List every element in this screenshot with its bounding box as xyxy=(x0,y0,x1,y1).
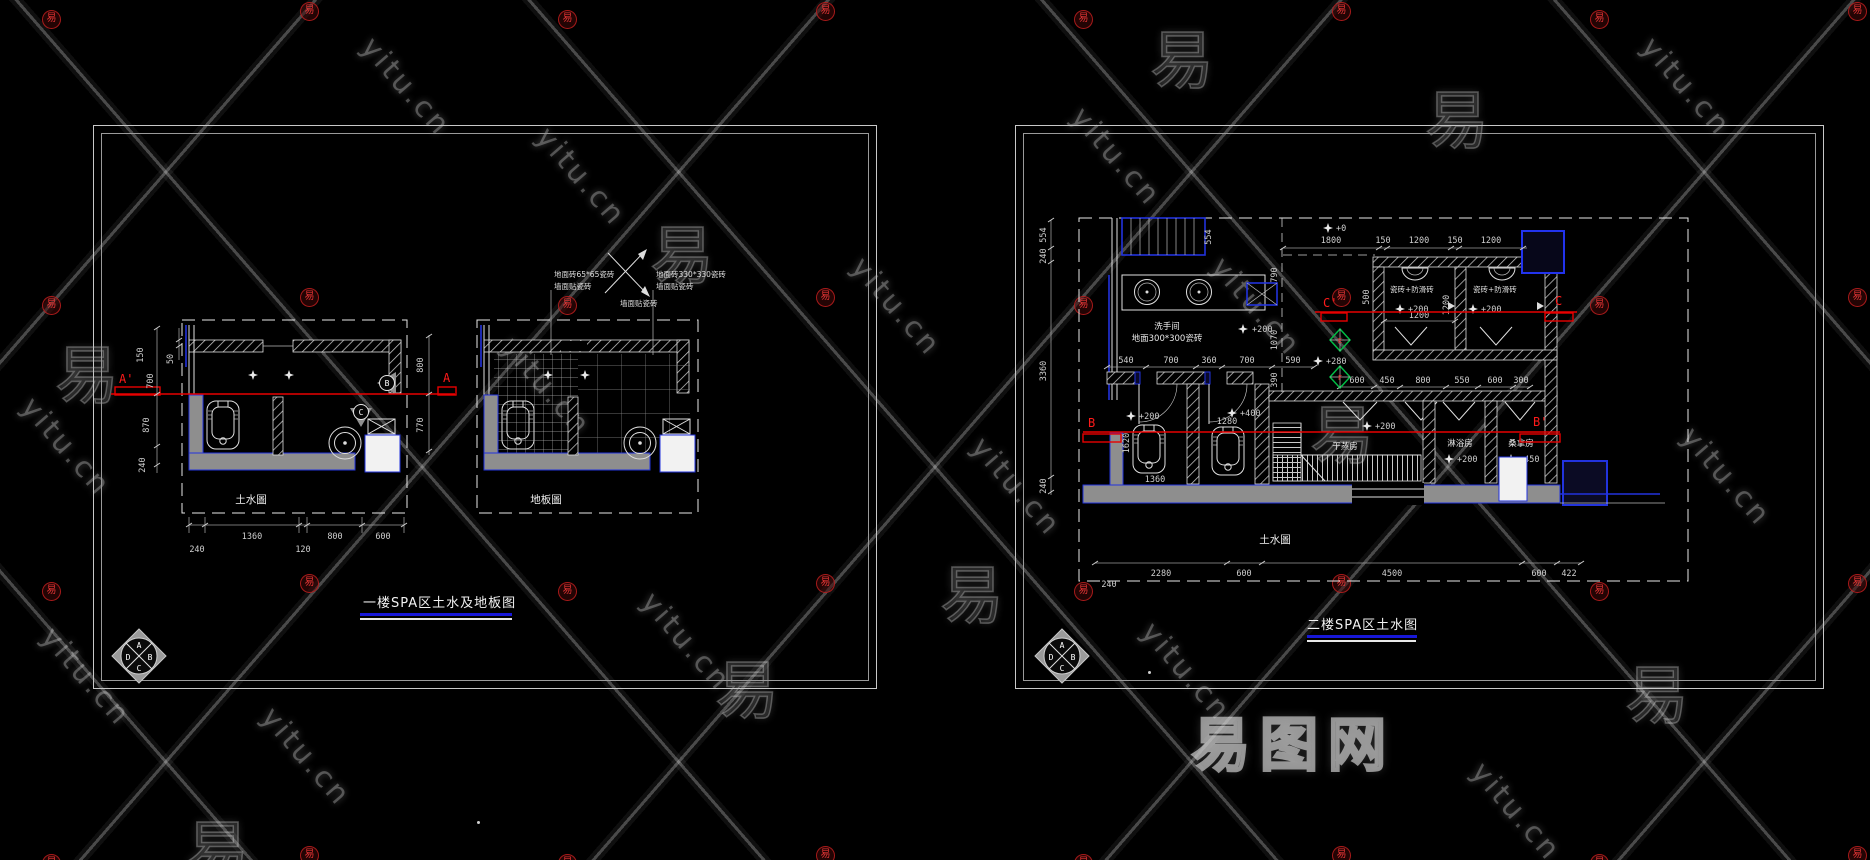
section-b-end: B' xyxy=(1533,415,1547,429)
washroom-counter xyxy=(1122,275,1265,310)
svg-text:800: 800 xyxy=(416,357,426,372)
watermark-badge-icon: 易 xyxy=(558,10,577,29)
svg-text:422: 422 xyxy=(1561,569,1576,579)
marker-c-label: C xyxy=(359,408,364,417)
svg-text:500: 500 xyxy=(1362,289,1372,304)
svg-text:1360: 1360 xyxy=(1145,475,1165,485)
svg-text:1800: 1800 xyxy=(1321,236,1341,246)
watermark-badge-icon: 易 xyxy=(300,846,319,860)
marker-b: B xyxy=(377,372,396,394)
bathtub xyxy=(207,401,239,449)
watermark-badge-icon: 易 xyxy=(1590,854,1609,860)
section-line-a: A' A xyxy=(111,371,456,395)
svg-text:390: 390 xyxy=(1270,372,1280,387)
svg-text:240: 240 xyxy=(1039,478,1049,493)
svg-text:1280: 1280 xyxy=(1217,417,1237,427)
callout-tile-330: 地面砖330*330瓷砖 xyxy=(656,269,726,279)
svg-text:150: 150 xyxy=(1447,236,1462,246)
tub-rooms: +200 +400 1280 1620 1360 xyxy=(1107,372,1269,501)
svg-text:A: A xyxy=(1060,641,1065,650)
watermark-site-text: yitu.cn xyxy=(1464,755,1568,860)
shaft-box xyxy=(1522,231,1564,273)
sheet1-title: 一楼SPA区土水及地板图 xyxy=(363,596,516,611)
watermark-badge-icon: 易 xyxy=(42,854,61,860)
room-sauna-label: 桑拿房 xyxy=(1508,438,1534,449)
room-washroom-label: 洗手间 xyxy=(1154,321,1180,332)
bathtub xyxy=(1212,427,1244,475)
svg-text:600: 600 xyxy=(1487,376,1502,386)
svg-text:550: 550 xyxy=(1454,376,1469,386)
drain-box xyxy=(1247,283,1277,305)
svg-text:+280: +280 xyxy=(1326,357,1346,367)
section-b-start: B xyxy=(1088,416,1095,430)
svg-text:D: D xyxy=(126,653,131,662)
svg-text:1360: 1360 xyxy=(242,532,262,542)
floor-drain xyxy=(368,419,395,434)
marker-b-label: B xyxy=(385,379,390,388)
watermark-yi-glyph: 易 xyxy=(940,545,1004,637)
watermark-badge-icon: 易 xyxy=(1074,854,1093,860)
watermark-badge-icon: 易 xyxy=(1848,2,1867,21)
svg-text:E: E xyxy=(1338,337,1342,345)
svg-text:B: B xyxy=(148,653,153,662)
wall-toilet xyxy=(1489,268,1515,280)
plan-flooring-floor1: 地板圖 地面砖65*65瓷砖 墙面贴瓷砖 地面砖330*330瓷砖 墙面贴瓷砖 … xyxy=(477,249,726,513)
callout-tile-65: 地面砖65*65瓷砖 xyxy=(554,269,615,279)
watermark-badge-icon: 易 xyxy=(1074,10,1093,29)
svg-text:600: 600 xyxy=(375,532,390,542)
toilet-tile-note: 瓷砖+防滑砖 xyxy=(1390,284,1434,294)
svg-text:B: B xyxy=(1071,653,1076,662)
svg-text:120: 120 xyxy=(295,545,310,555)
watermark-badge-icon: 易 xyxy=(42,582,61,601)
section-a-end: A xyxy=(443,371,451,385)
svg-text:790: 790 xyxy=(1270,267,1280,282)
svg-text:4500: 4500 xyxy=(1382,569,1402,579)
svg-text:墙面贴瓷砖: 墙面贴瓷砖 xyxy=(620,298,658,308)
watermark-badge-icon: 易 xyxy=(1848,574,1867,593)
room-drysteam-label: 干蒸房 xyxy=(1332,441,1358,452)
svg-text:590: 590 xyxy=(1285,356,1300,366)
door-leaf xyxy=(660,435,695,472)
svg-text:700: 700 xyxy=(146,373,156,388)
cad-canvas: yitu.cnyitu.cnyitu.cnyitu.cnyitu.cnyitu.… xyxy=(0,0,1870,860)
watermark-badge-icon: 易 xyxy=(300,2,319,21)
yitu-logo: 易图网 xyxy=(1192,698,1396,782)
svg-text:240: 240 xyxy=(1101,580,1116,590)
title-underline-blue xyxy=(1307,635,1417,638)
watermark-badge-icon: 易 xyxy=(1848,846,1867,860)
svg-text:554: 554 xyxy=(1039,227,1049,242)
plan-plumbing-floor2: 554 240 3360 240 554 xyxy=(1039,218,1688,590)
door-leaf xyxy=(365,435,400,472)
svg-text:1620: 1620 xyxy=(1122,433,1132,453)
svg-text:A: A xyxy=(137,641,142,650)
section-c-start: C' xyxy=(1323,296,1337,310)
plan-floor2-label: 土水圖 xyxy=(1259,533,1291,546)
svg-text:554: 554 xyxy=(1204,229,1214,244)
sheet-floor1: B C 土水圖 A' A 150 50 700 xyxy=(93,125,877,689)
svg-text:F: F xyxy=(1338,374,1342,382)
sauna-bench xyxy=(1273,455,1421,481)
watermark-badge-icon: 易 xyxy=(558,854,577,860)
marker-f: F xyxy=(1330,366,1350,388)
watermark-badge-icon: 易 xyxy=(1332,846,1351,860)
title-underline-white xyxy=(360,618,512,620)
watermark-badge-icon: 易 xyxy=(42,10,61,29)
svg-text:600: 600 xyxy=(1236,569,1251,579)
svg-text:1200: 1200 xyxy=(1481,236,1501,246)
svg-text:C: C xyxy=(1060,664,1065,673)
title-underline-blue xyxy=(360,613,512,616)
callout-tile-65-note: 墙面贴瓷砖 xyxy=(554,281,592,291)
svg-text:+200: +200 xyxy=(1457,455,1477,465)
svg-text:+200: +200 xyxy=(1481,305,1501,315)
svg-text:300: 300 xyxy=(1513,376,1528,386)
svg-text:600: 600 xyxy=(1531,569,1546,579)
toilet-tile-note: 瓷砖+防滑砖 xyxy=(1473,284,1517,294)
callout-tile-330-note: 墙面贴瓷砖 xyxy=(656,281,694,291)
room-shower-label: 淋浴房 xyxy=(1447,438,1473,449)
svg-text:240: 240 xyxy=(138,457,148,472)
watermark-yi-glyph: 易 xyxy=(185,800,249,860)
svg-text:1070: 1070 xyxy=(1270,330,1280,350)
svg-text:+200: +200 xyxy=(1375,422,1395,432)
svg-text:+0: +0 xyxy=(1336,224,1346,234)
svg-text:800: 800 xyxy=(327,532,342,542)
tile-grid-fine xyxy=(494,354,578,460)
section-a-start: A' xyxy=(119,372,133,386)
watermark-badge-icon: 易 xyxy=(816,846,835,860)
stairs xyxy=(1122,218,1205,255)
sheet-outer-border xyxy=(1016,126,1824,689)
svg-text:D: D xyxy=(1049,653,1054,662)
svg-text:C: C xyxy=(137,664,142,673)
svg-text:+400: +400 xyxy=(1240,409,1260,419)
svg-text:+200: +200 xyxy=(1139,412,1159,422)
watermark-badge-icon: 易 xyxy=(1332,2,1351,21)
svg-text:150: 150 xyxy=(136,347,146,362)
fixture-star-icon xyxy=(248,370,258,380)
room-washroom-note: 地面300*300瓷砖 xyxy=(1132,333,1203,344)
svg-text:800: 800 xyxy=(1415,376,1430,386)
svg-text:540: 540 xyxy=(1118,356,1133,366)
sheet-floor2: 554 240 3360 240 554 xyxy=(1015,125,1824,689)
wall-toilet xyxy=(1402,268,1428,280)
watermark-badge-icon: 易 xyxy=(1848,288,1867,307)
svg-text:240: 240 xyxy=(1039,248,1049,263)
svg-text:2280: 2280 xyxy=(1151,569,1171,579)
svg-text:450: 450 xyxy=(1379,376,1394,386)
compass-symbol: A B C D xyxy=(1035,629,1089,683)
watermark-badge-icon: 易 xyxy=(1590,10,1609,29)
svg-text:770: 770 xyxy=(416,417,426,432)
door-leaf xyxy=(1499,457,1527,501)
svg-text:1200: 1200 xyxy=(1409,236,1429,246)
compass-symbol: A B C D xyxy=(112,629,166,683)
svg-text:600: 600 xyxy=(1349,376,1364,386)
marker-e: E xyxy=(1330,329,1350,351)
plan1-label: 土水圖 xyxy=(235,493,267,506)
svg-text:360: 360 xyxy=(1201,356,1216,366)
watermark-badge-icon: 易 xyxy=(816,2,835,21)
shaft-box xyxy=(1563,461,1607,505)
svg-text:50: 50 xyxy=(166,354,176,364)
dot-artifact xyxy=(477,821,480,824)
sheet2-title: 二楼SPA区土水图 xyxy=(1307,618,1418,633)
svg-text:700: 700 xyxy=(1163,356,1178,366)
marker-c: C xyxy=(350,405,372,428)
watermark-site-text: yitu.cn xyxy=(254,700,358,813)
section-c-end: C xyxy=(1555,294,1562,308)
watermark-yi-glyph: 易 xyxy=(1150,10,1214,102)
svg-text:150: 150 xyxy=(1375,236,1390,246)
watermark-badge-icon: 易 xyxy=(42,296,61,315)
svg-text:870: 870 xyxy=(142,417,152,432)
svg-text:3360: 3360 xyxy=(1039,361,1049,381)
dot-artifact xyxy=(1148,671,1151,674)
svg-text:700: 700 xyxy=(1239,356,1254,366)
fixture-star-icon xyxy=(284,370,294,380)
title-underline-white xyxy=(1307,640,1416,642)
svg-text:240: 240 xyxy=(189,545,204,555)
plan2-label: 地板圖 xyxy=(530,493,562,506)
sheet-inner-border xyxy=(1024,134,1816,681)
plan-plumbing-floor1: B C 土水圖 xyxy=(182,320,407,513)
